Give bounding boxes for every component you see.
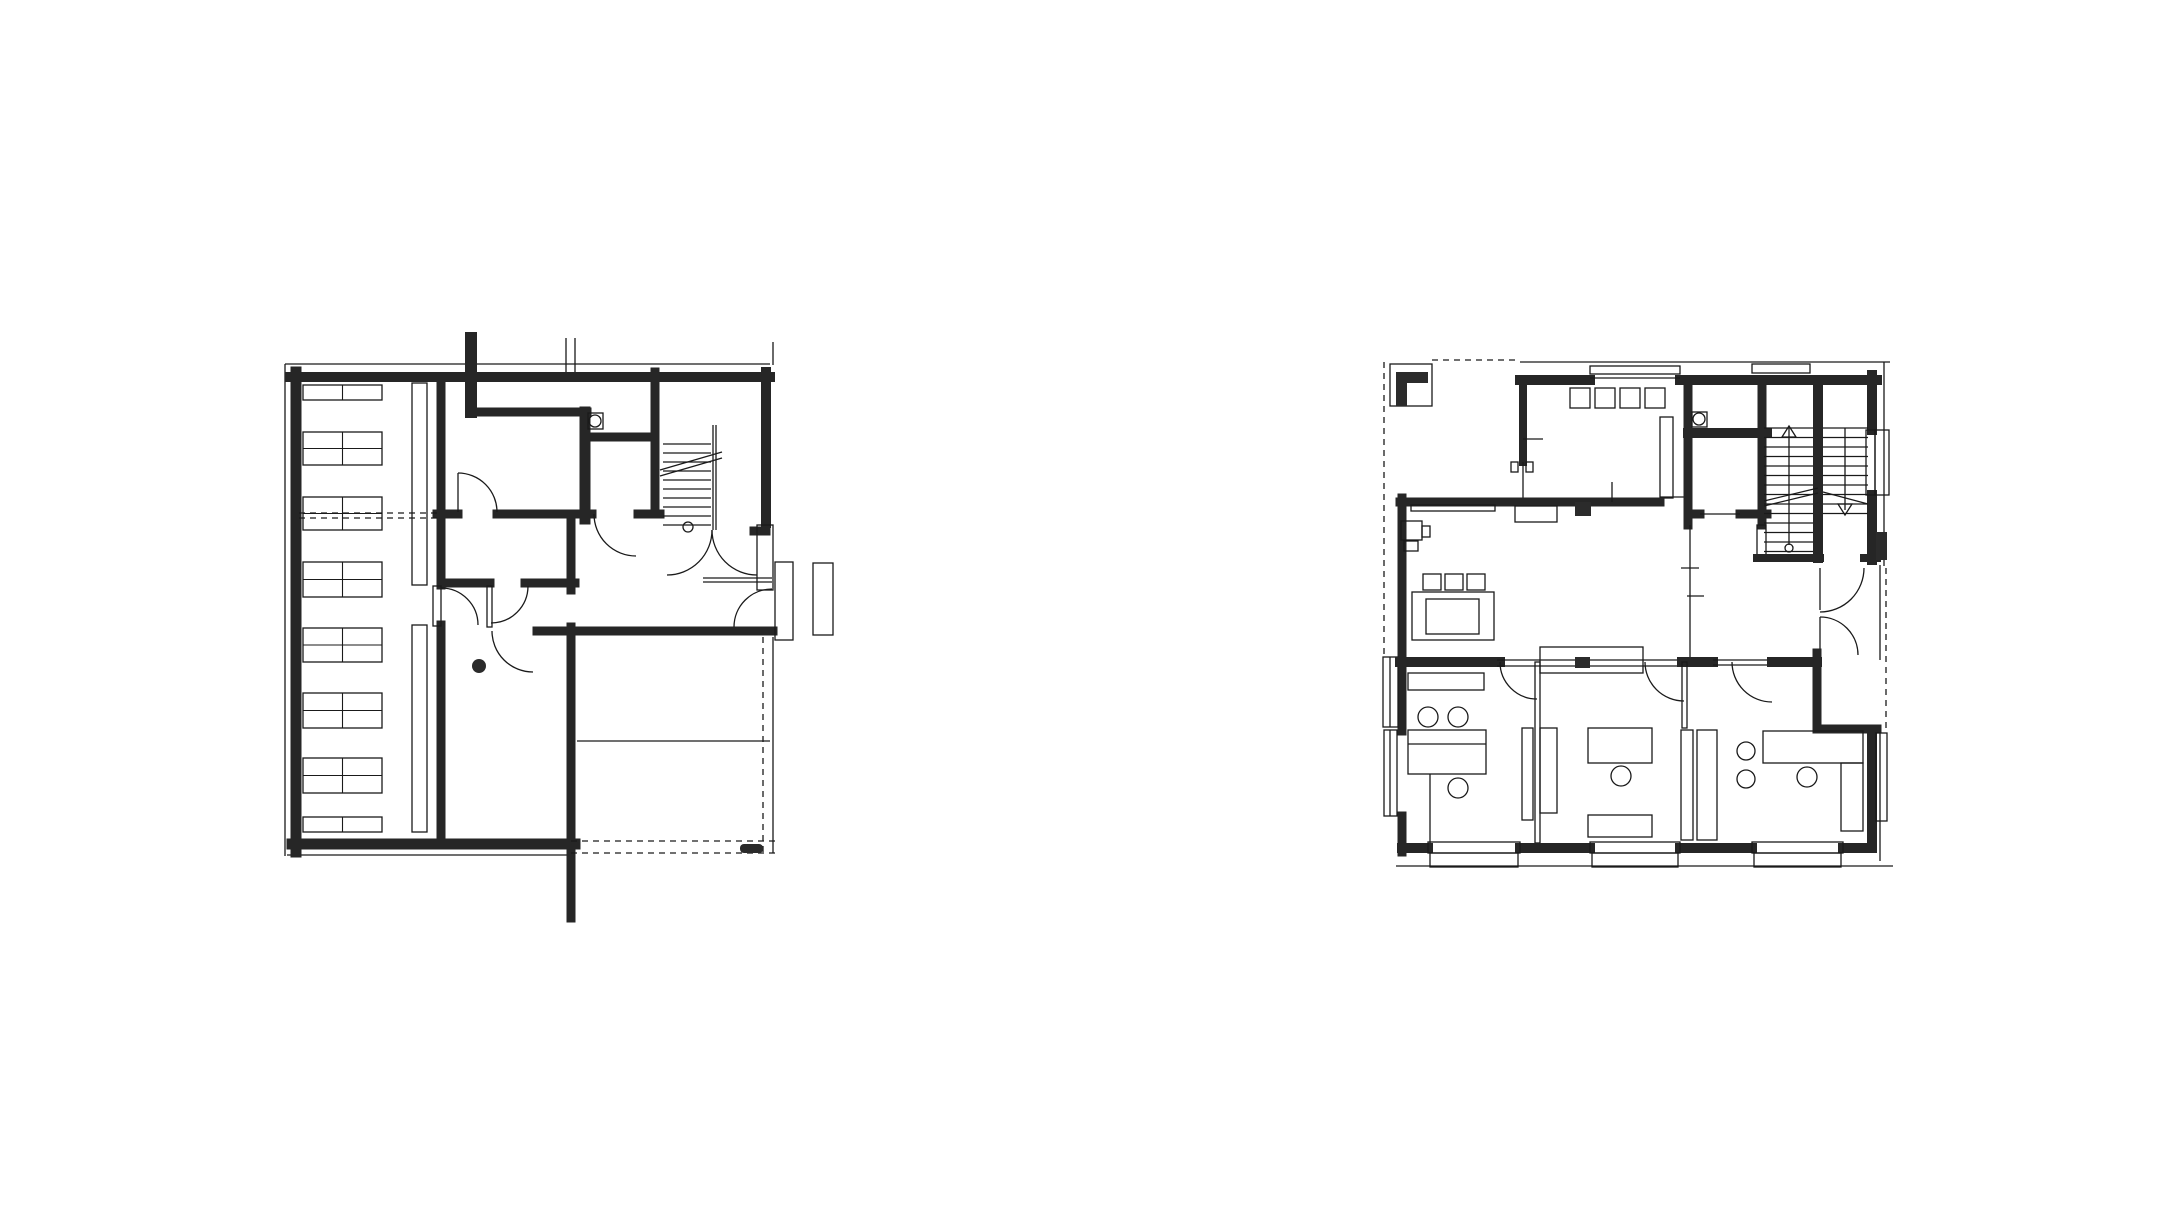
window	[1752, 842, 1843, 853]
window	[1754, 853, 1841, 867]
door-swing	[491, 586, 528, 623]
door-swing	[1820, 568, 1864, 612]
desk	[1408, 730, 1486, 774]
door-swing	[441, 588, 478, 625]
door-swing	[734, 589, 772, 627]
window	[1430, 853, 1518, 867]
chair	[1737, 742, 1755, 760]
shelf-unit	[303, 385, 382, 400]
dining-chair	[1445, 574, 1463, 590]
marker	[740, 844, 763, 853]
table	[1515, 506, 1557, 522]
stair-newel	[683, 522, 693, 532]
desk	[1763, 731, 1863, 763]
dresser	[1588, 815, 1652, 837]
stair-walk-start	[1785, 544, 1793, 552]
dining-table-inner	[1426, 599, 1479, 634]
solid-wall-piece	[1575, 657, 1590, 668]
partition	[1535, 662, 1540, 843]
cupboard	[412, 383, 427, 585]
wardrobe	[1681, 730, 1693, 840]
kitchen-unit	[1570, 388, 1590, 408]
window	[1876, 733, 1887, 821]
shelf	[1408, 673, 1484, 690]
window	[1752, 364, 1810, 373]
entry-step	[813, 563, 833, 635]
dining-chair	[1423, 574, 1441, 590]
window	[1875, 430, 1889, 495]
door-leaf	[433, 586, 441, 626]
door-leaf	[487, 586, 492, 627]
desk	[1841, 763, 1863, 831]
shelf-unit	[303, 562, 382, 597]
partition	[1682, 662, 1687, 728]
shelf-unit	[303, 432, 382, 465]
window	[1592, 853, 1678, 867]
kitchen-counter	[1660, 417, 1673, 498]
slider-detail	[1526, 462, 1533, 472]
kitchen-unit	[1620, 388, 1640, 408]
sink-basin	[1693, 413, 1705, 425]
lower-floor-plan	[285, 338, 833, 918]
kitchen-unit	[1645, 388, 1665, 408]
door-swing	[594, 514, 636, 556]
chair	[1418, 707, 1438, 727]
door-swing	[712, 530, 757, 575]
shelf-unit	[303, 758, 382, 793]
wardrobe	[1540, 728, 1557, 813]
desk-return	[1422, 526, 1430, 537]
window	[1590, 842, 1680, 853]
window	[1428, 842, 1520, 853]
shelf-unit	[303, 693, 382, 728]
architectural-floor-plans	[0, 0, 2182, 1221]
wardrobe	[1522, 728, 1533, 820]
drawing-sheet: Two monochrome architectural floor plans…	[0, 0, 2182, 1221]
column	[472, 659, 486, 673]
upper-floor-plan	[1383, 360, 1893, 867]
chair	[1611, 766, 1631, 786]
door-swing	[1732, 662, 1772, 702]
chimney	[1575, 502, 1591, 516]
door-swing	[1645, 662, 1684, 701]
chair	[1448, 778, 1468, 798]
solid-wall-piece	[1396, 372, 1407, 406]
shelf-unit	[303, 628, 382, 662]
chair	[1797, 767, 1817, 787]
desk	[1588, 728, 1652, 763]
solid-wall-piece	[1876, 532, 1887, 560]
door-swing	[1820, 617, 1858, 655]
sink-basin	[589, 415, 601, 427]
cupboard	[412, 625, 427, 832]
wardrobe	[1697, 730, 1717, 840]
dining-chair	[1467, 574, 1485, 590]
chair	[1737, 770, 1755, 788]
kitchen-unit	[1595, 388, 1615, 408]
shelf-unit	[303, 817, 382, 832]
stair-treads	[663, 444, 711, 525]
slider-detail	[1511, 462, 1518, 472]
door-swing	[667, 530, 712, 575]
chair	[1448, 707, 1468, 727]
window	[1590, 366, 1680, 374]
door-swing	[458, 473, 497, 512]
door-swing	[1500, 662, 1537, 699]
entry-step	[775, 562, 793, 640]
door-swing	[492, 631, 533, 672]
